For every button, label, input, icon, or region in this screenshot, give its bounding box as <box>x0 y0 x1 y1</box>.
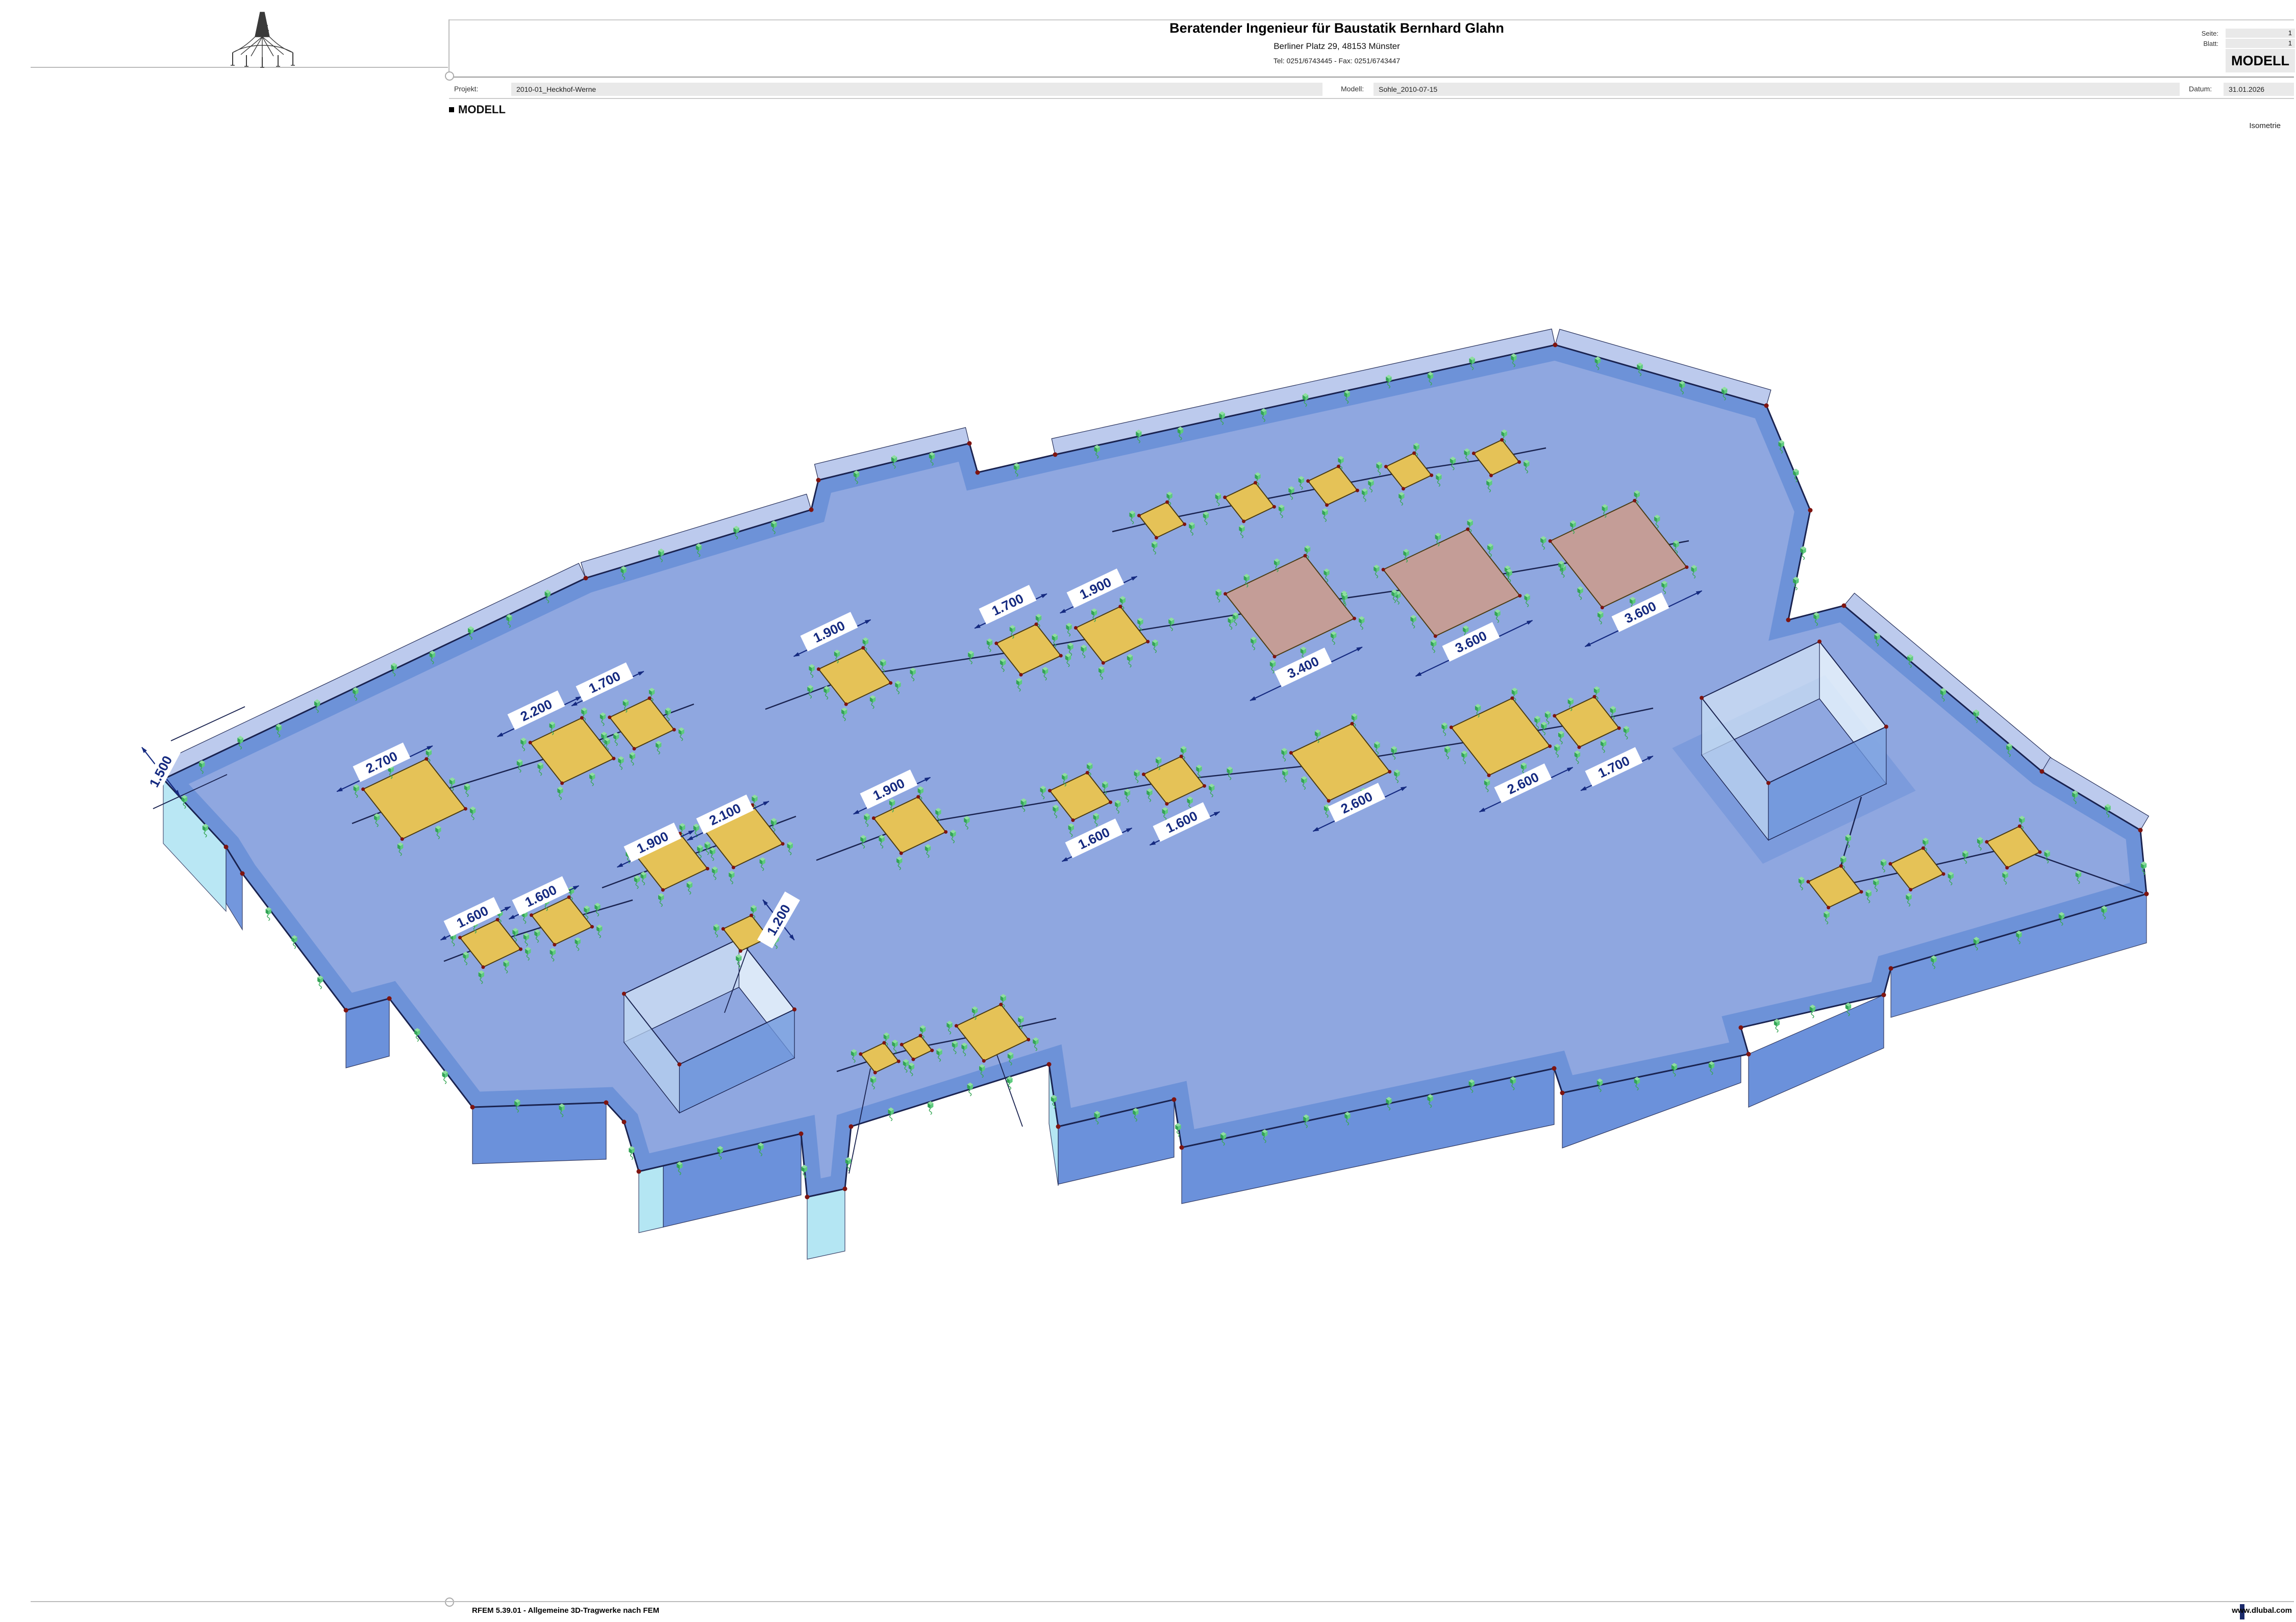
isometric-model-view: 1.9001.7001.9003.4003.6003.6002.7002.200… <box>0 0 2296 1622</box>
report-page: Beratender Ingenieur für Baustatik Bernh… <box>0 0 2296 1622</box>
website-label: www.dlubal.com <box>2232 1606 2292 1615</box>
software-version-label: RFEM 5.39.01 - Allgemeine 3D-Tragwerke n… <box>472 1606 659 1615</box>
